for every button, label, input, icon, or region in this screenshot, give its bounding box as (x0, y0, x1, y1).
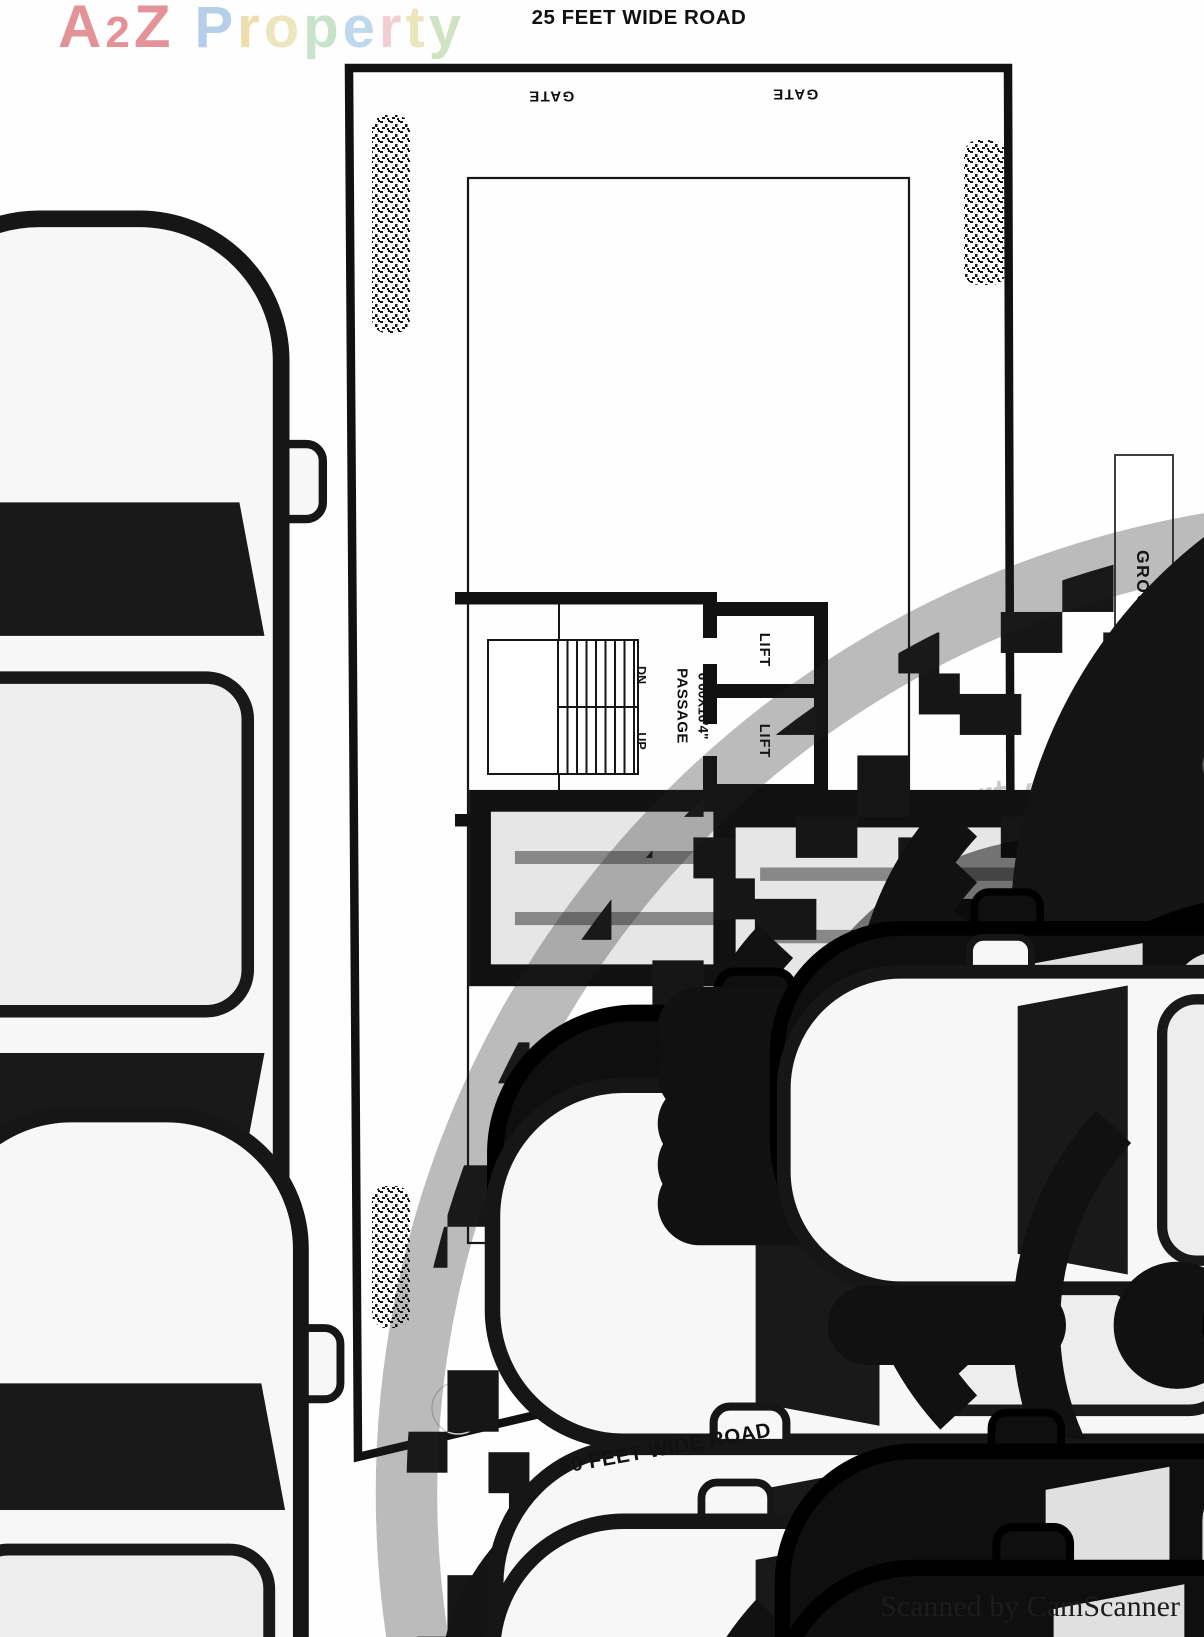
stair-down-label: DN (634, 666, 648, 684)
passage-label: PASSAGE (674, 668, 691, 744)
camscanner-credit: Scanned by CamScanner (880, 1590, 1180, 1624)
lift-1-label: LIFT (756, 633, 772, 668)
scanned-floor-plan-page: A2ZProperty www.A2ZProperty.in પરિવારના … (0, 0, 1204, 1637)
stair-up-label: UP (634, 732, 648, 749)
parked-car-icon (0, 1114, 340, 1637)
passage-dimension: 6'00X16'4" (696, 673, 711, 740)
hedge-strip (372, 115, 410, 333)
parked-car-icon (784, 937, 1204, 1322)
gate-label: GATE (772, 86, 819, 103)
hedge-strip (964, 140, 1006, 285)
gate-label: GATE (528, 88, 575, 105)
top-road-label: 25 FEET WIDE ROAD (532, 6, 747, 29)
site-plan-drawing: DN UP PASSAGE 6'00X16'4" LIFT LIFT GROUN… (0, 0, 1204, 1637)
